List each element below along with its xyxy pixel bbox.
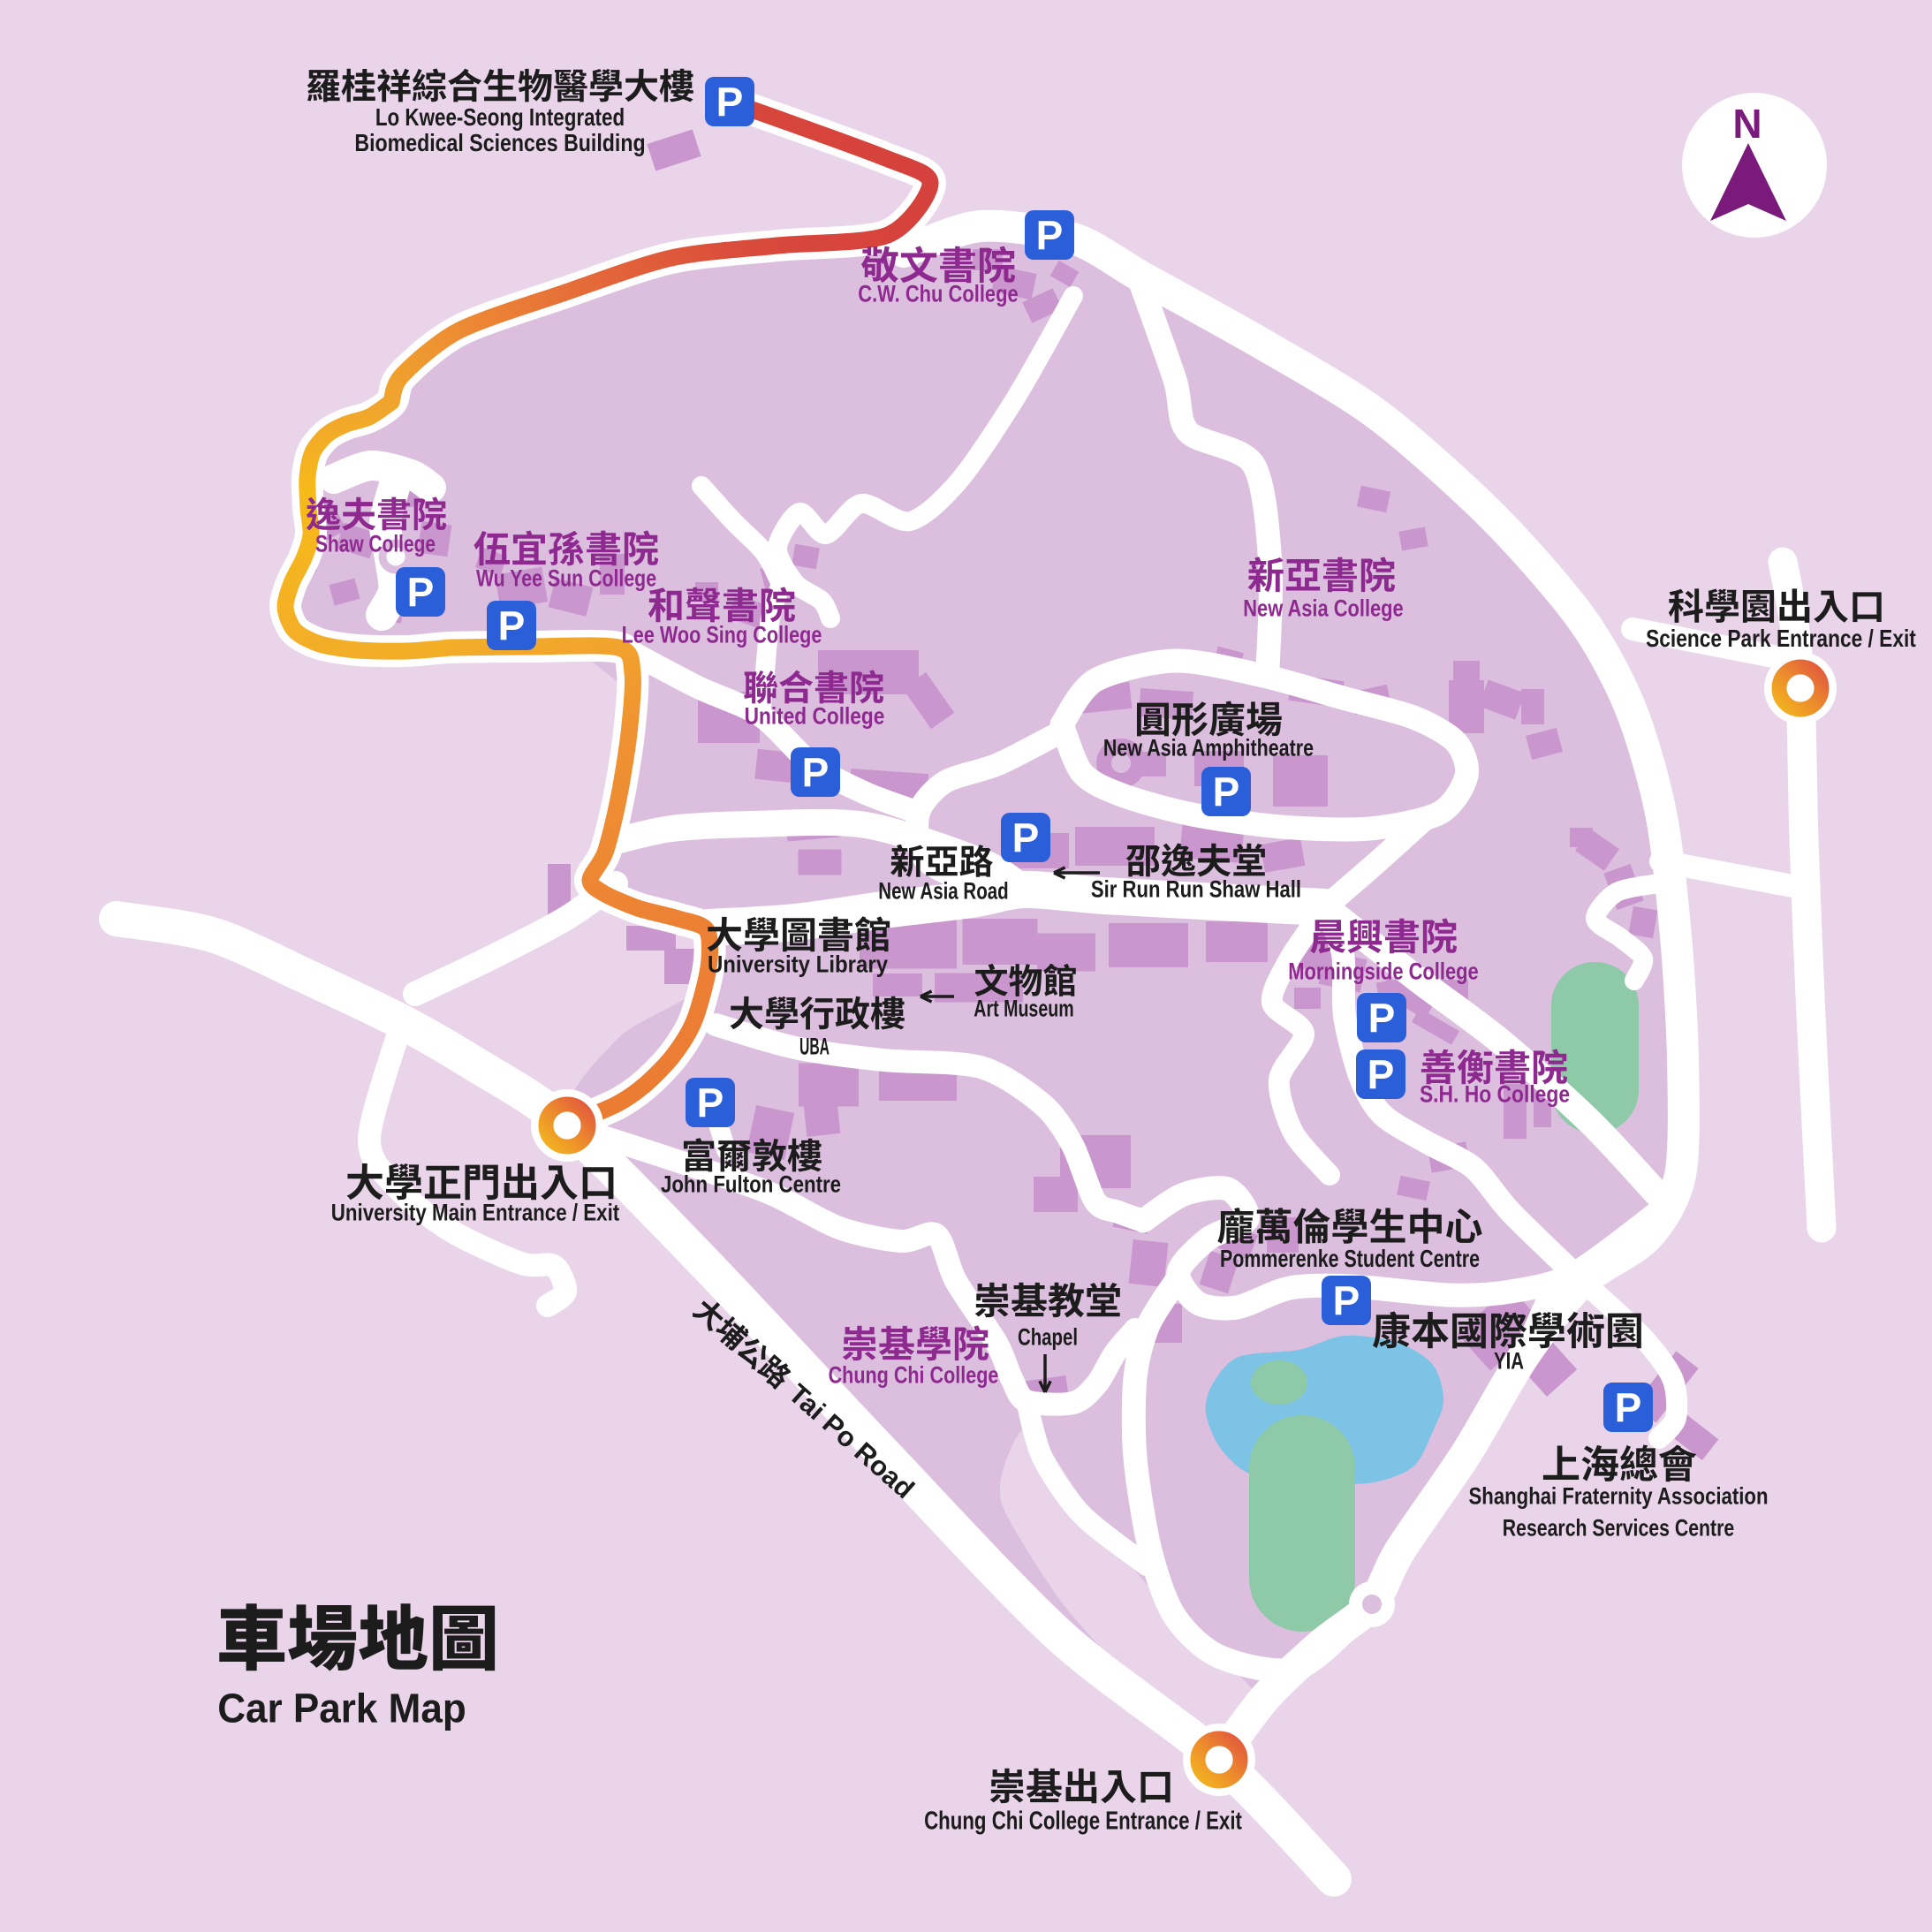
svg-text:S.H. Ho College: S.H. Ho College bbox=[1420, 1081, 1570, 1108]
svg-text:Art Museum: Art Museum bbox=[974, 996, 1073, 1022]
svg-text:Lo Kwee-Seong Integrated: Lo Kwee-Seong Integrated bbox=[375, 103, 625, 131]
svg-text:Biomedical Sciences Building: Biomedical Sciences Building bbox=[354, 129, 645, 156]
svg-text:P: P bbox=[498, 603, 526, 649]
svg-text:Chapel: Chapel bbox=[1018, 1324, 1078, 1351]
svg-text:P: P bbox=[1333, 1278, 1360, 1324]
svg-text:N: N bbox=[1732, 101, 1762, 147]
svg-text:Morningside College: Morningside College bbox=[1288, 958, 1478, 985]
svg-text:YIA: YIA bbox=[1494, 1348, 1524, 1375]
svg-text:Chung Chi College: Chung Chi College bbox=[829, 1362, 999, 1389]
svg-text:P: P bbox=[1368, 996, 1396, 1042]
svg-text:New Asia College: New Asia College bbox=[1243, 595, 1403, 622]
svg-text:UBA: UBA bbox=[799, 1034, 830, 1060]
svg-text:University Main Entrance / Exi: University Main Entrance / Exit bbox=[331, 1200, 619, 1226]
svg-text:P: P bbox=[1012, 815, 1040, 861]
svg-text:P: P bbox=[407, 570, 435, 616]
svg-text:New Asia Amphitheatre: New Asia Amphitheatre bbox=[1103, 735, 1314, 761]
svg-text:C.W. Chu College: C.W. Chu College bbox=[858, 281, 1018, 307]
svg-text:P: P bbox=[716, 80, 744, 125]
svg-text:P: P bbox=[1615, 1385, 1642, 1431]
svg-text:P: P bbox=[802, 750, 830, 796]
svg-text:Wu Yee Sun College: Wu Yee Sun College bbox=[476, 565, 656, 592]
svg-text:P: P bbox=[697, 1080, 724, 1126]
svg-text:John Fulton Centre: John Fulton Centre bbox=[661, 1171, 841, 1198]
svg-text:Car Park Map: Car Park Map bbox=[217, 1686, 466, 1731]
svg-text:P: P bbox=[1368, 1052, 1395, 1098]
svg-text:P: P bbox=[1036, 213, 1064, 259]
svg-text:Chung Chi College Entrance / E: Chung Chi College Entrance / Exit bbox=[924, 1807, 1242, 1835]
svg-text:Pommerenke Student Centre: Pommerenke Student Centre bbox=[1220, 1245, 1480, 1272]
svg-text:Research Services Centre: Research Services Centre bbox=[1503, 1515, 1734, 1542]
svg-text:Shaw College: Shaw College bbox=[315, 531, 436, 557]
svg-text:Sir Run Run Shaw Hall: Sir Run Run Shaw Hall bbox=[1091, 876, 1301, 903]
svg-text:Shanghai Fraternity Associatio: Shanghai Fraternity Association bbox=[1469, 1483, 1769, 1510]
svg-text:University Library: University Library bbox=[708, 951, 888, 978]
svg-text:P: P bbox=[1213, 769, 1240, 815]
svg-text:Lee Woo Sing College: Lee Woo Sing College bbox=[622, 622, 822, 648]
svg-text:Science Park Entrance / Exit: Science Park Entrance / Exit bbox=[1646, 625, 1916, 652]
svg-text:New Asia Road: New Asia Road bbox=[878, 878, 1008, 905]
svg-text:United College: United College bbox=[745, 703, 885, 730]
